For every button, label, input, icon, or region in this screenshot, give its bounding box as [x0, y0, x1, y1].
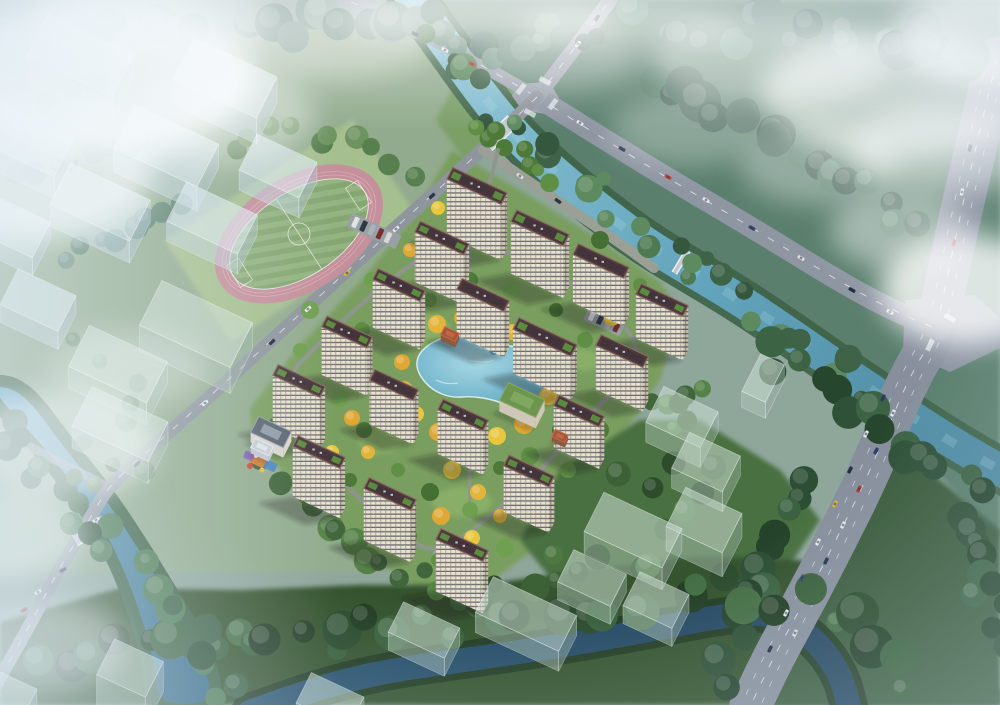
- residential-compound-rendering: [0, 0, 1000, 705]
- edge-vignette: [0, 0, 1000, 705]
- aerial-render-image: [0, 0, 1000, 705]
